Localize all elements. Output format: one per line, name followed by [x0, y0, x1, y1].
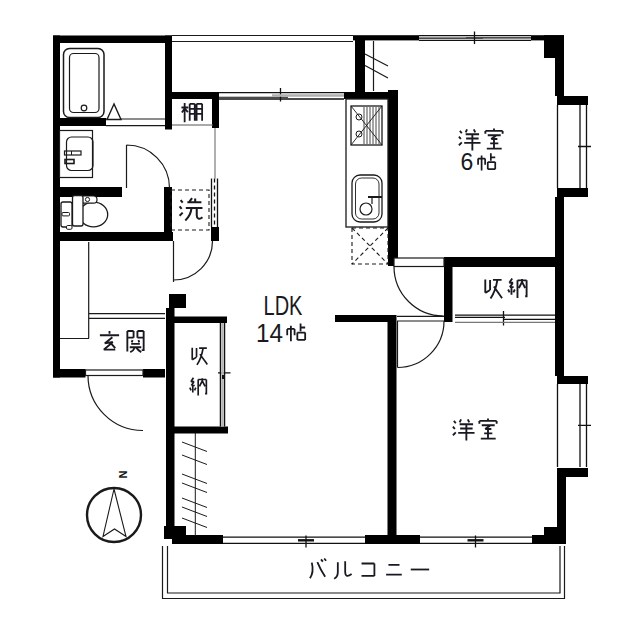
svg-text:LDK: LDK: [264, 291, 303, 321]
svg-text:14: 14: [256, 318, 283, 348]
svg-text:6: 6: [461, 149, 474, 175]
svg-text:N: N: [117, 471, 129, 479]
